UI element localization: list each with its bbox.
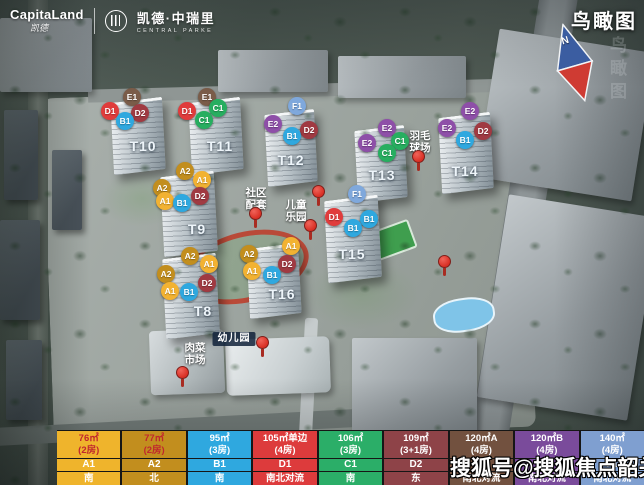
- pin-tail: [181, 379, 184, 387]
- legend-column-A1: 76㎡(2房)A1南: [57, 431, 120, 485]
- legend-area: 77㎡: [144, 433, 164, 445]
- pin-head: [249, 207, 262, 220]
- legend-type-cell: C1: [319, 459, 382, 471]
- legend-rooms: (3房): [209, 445, 230, 457]
- legend-area-cell: 105㎡单边(4房): [253, 431, 316, 458]
- pin-head: [256, 336, 269, 349]
- legend-type-cell: A2: [122, 459, 185, 471]
- legend-rooms: (4房): [274, 445, 295, 457]
- pin-head: [304, 219, 317, 232]
- pin-tail: [309, 232, 312, 240]
- ghost-watermark: 鸟瞰图: [604, 36, 629, 105]
- project-subtitle: CENTRAL PARKE: [137, 28, 215, 34]
- location-pin-icon: [302, 219, 318, 240]
- pin-head: [412, 150, 425, 163]
- legend-column-B1: 95㎡(3房)B1南: [188, 431, 251, 485]
- legend-rooms: (3房): [340, 445, 361, 457]
- legend-orientation-cell: 南: [57, 472, 120, 485]
- legend-column-A2: 77㎡(2房)A2北: [122, 431, 185, 485]
- pin-tail: [317, 198, 320, 206]
- legend-column-C1: 106㎡(3房)C1南: [319, 431, 382, 485]
- legend-orientation-cell: 南: [188, 472, 251, 485]
- legend-area: 120㎡B: [531, 433, 563, 445]
- pin-tail: [417, 163, 420, 171]
- pin-head: [176, 366, 189, 379]
- legend-rooms: (2房): [144, 445, 165, 457]
- legend-area: 76㎡: [79, 433, 99, 445]
- legend-area-cell: 77㎡(2房): [122, 431, 185, 458]
- location-pin-icon: [310, 185, 326, 206]
- header: CapitaLand 凯德 凯德·中瑞里 CENTRAL PARKE: [10, 7, 215, 34]
- location-pin-icon: [247, 207, 263, 228]
- pin-tail: [254, 220, 257, 228]
- pin-tail: [261, 349, 264, 357]
- location-pin-icon: [254, 336, 270, 357]
- pin-head: [438, 255, 451, 268]
- legend-rooms: (3+1房): [400, 445, 432, 457]
- legend-area: 95㎡: [210, 433, 230, 445]
- pin-tail: [443, 268, 446, 276]
- legend-type-cell: D1: [253, 459, 316, 471]
- aerial-rendering: T8T9T10T11T12T13T14T15T16 社区 配套儿童 乐园羽毛 球…: [0, 0, 644, 485]
- kindergarten-sign: 幼儿园: [213, 332, 256, 346]
- legend-orientation-cell: 南北对流: [253, 472, 316, 485]
- header-divider: [94, 8, 95, 34]
- location-pin-icon: [410, 150, 426, 171]
- project-name: 凯德·中瑞里: [137, 8, 215, 27]
- legend-type-cell: D2: [384, 459, 447, 471]
- legend-column-D2: 109㎡(3+1房)D2东: [384, 431, 447, 485]
- legend-area-cell: 109㎡(3+1房): [384, 431, 447, 458]
- legend-area: 106㎡: [338, 433, 363, 445]
- legend-orientation-cell: 东: [384, 472, 447, 485]
- legend-orientation-cell: 南: [319, 472, 382, 485]
- legend-area-cell: 95㎡(3房): [188, 431, 251, 458]
- project-logo: 凯德·中瑞里 CENTRAL PARKE: [137, 8, 215, 34]
- legend-orientation-cell: 北: [122, 472, 185, 485]
- pins-layer: [0, 0, 644, 485]
- legend-area: 120㎡A: [465, 433, 497, 445]
- capitaland-logo: CapitaLand 凯德: [10, 7, 84, 34]
- legend-column-D1: 105㎡单边(4房)D1南北对流: [253, 431, 316, 485]
- location-pin-icon: [436, 255, 452, 276]
- pin-head: [312, 185, 325, 198]
- project-logo-icon: [105, 10, 127, 32]
- location-pin-icon: [174, 366, 190, 387]
- legend-area-cell: 106㎡(3房): [319, 431, 382, 458]
- brand-name: CapitaLand: [10, 7, 84, 22]
- legend-type-cell: B1: [188, 459, 251, 471]
- legend-area: 140㎡: [600, 433, 625, 445]
- brand-script: 凯德: [30, 21, 84, 34]
- legend-type-cell: A1: [57, 459, 120, 471]
- legend-rooms: (2房): [78, 445, 99, 457]
- legend-area: 105㎡单边: [263, 433, 307, 445]
- watermark: 搜狐号@搜狐焦点韶关站: [450, 452, 644, 482]
- legend-area-cell: 76㎡(2房): [57, 431, 120, 458]
- legend-area: 109㎡: [403, 433, 428, 445]
